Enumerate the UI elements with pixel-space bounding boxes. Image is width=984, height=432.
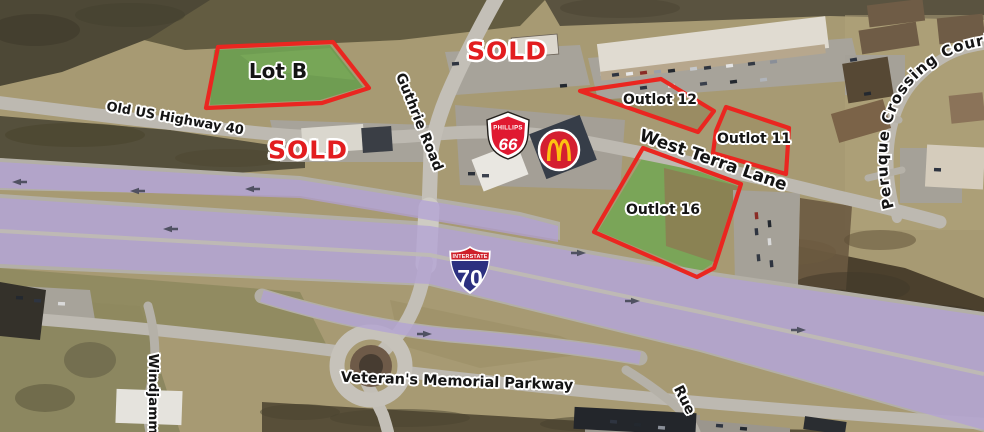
car xyxy=(740,427,747,431)
office-building-6 xyxy=(949,92,984,123)
car xyxy=(757,254,761,261)
sold-label-west: SOLD xyxy=(268,138,348,163)
tree-blob xyxy=(5,123,145,147)
car xyxy=(768,238,772,245)
building-bottom-left xyxy=(0,282,46,340)
car xyxy=(755,228,759,235)
mcdonalds-logo xyxy=(539,130,579,170)
tree-blob xyxy=(75,3,185,27)
car xyxy=(716,424,723,428)
car xyxy=(658,426,665,430)
tree-blob xyxy=(64,342,116,378)
road-label-windjammer: Windjamm xyxy=(145,354,159,432)
car xyxy=(934,168,941,172)
car xyxy=(560,84,567,88)
outlot-12-label: Outlot 12 xyxy=(623,93,697,107)
outlot-16-label: Outlot 16 xyxy=(626,203,700,217)
car xyxy=(34,299,41,303)
outlot-11-label: Outlot 11 xyxy=(717,132,791,146)
phillips-number: 66 xyxy=(499,135,518,154)
phillips-brand: PHILLIPS xyxy=(493,126,522,132)
car xyxy=(770,260,774,267)
lot-b-label: Lot B xyxy=(249,61,307,81)
car xyxy=(634,423,641,427)
tree-blob xyxy=(844,230,916,250)
interstate-caption: INTERSTATE xyxy=(452,254,487,260)
outlot16-east-parking xyxy=(733,190,800,287)
car xyxy=(768,220,772,227)
interstate-number: 70 xyxy=(457,265,483,291)
office-building-3 xyxy=(842,57,894,104)
car xyxy=(452,62,459,66)
car xyxy=(482,174,489,177)
tree-blob xyxy=(260,404,340,420)
sold-west-building-dark-wing xyxy=(361,126,393,153)
tree-blob xyxy=(15,384,75,412)
tree-blob xyxy=(330,409,470,427)
sold-label-north: SOLD xyxy=(467,39,547,64)
car xyxy=(16,296,23,300)
car xyxy=(468,172,475,175)
car xyxy=(58,302,65,306)
car xyxy=(610,420,617,424)
office-building-7 xyxy=(925,145,984,190)
car xyxy=(755,212,759,219)
aerial-listing-map: Peruque Crossing Court INTERSTATE 70 PHI… xyxy=(0,0,984,432)
